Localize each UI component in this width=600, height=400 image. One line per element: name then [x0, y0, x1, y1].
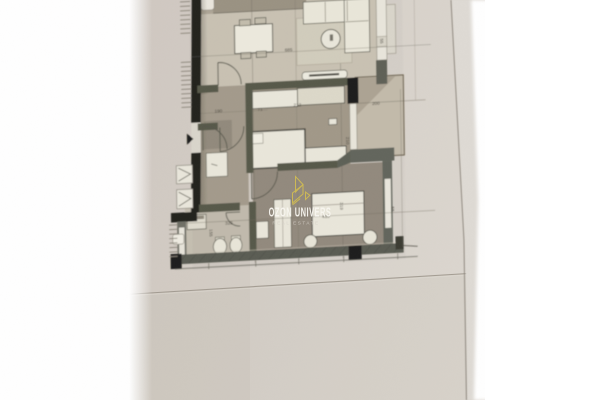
- svg-text:REAL ESTATE: REAL ESTATE: [272, 220, 319, 225]
- svg-text:OZON UNIVERS: OZON UNIVERS: [269, 207, 332, 220]
